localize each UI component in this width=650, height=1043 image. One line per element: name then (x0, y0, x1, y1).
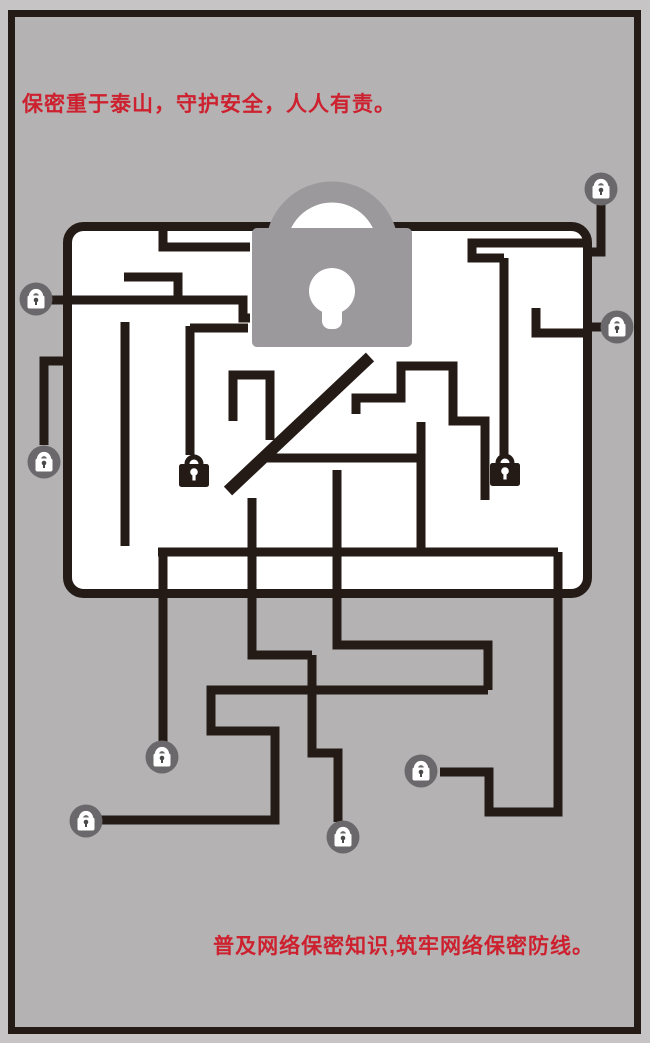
lock-badge-icon (405, 755, 438, 788)
lock-badge-icon (327, 821, 360, 854)
lock-badge-icon (601, 311, 634, 344)
padlock-icon (252, 192, 412, 347)
lock-badge-icon (70, 805, 103, 838)
bottom-slogan: 普及网络保密知识,筑牢网络保密防线。 (213, 930, 594, 960)
security-poster: 保密重于泰山，守护安全，人人有责。 普及网络保密知识,筑牢网络保密防线。 (0, 0, 650, 1043)
lock-badge-icon (20, 283, 53, 316)
lock-badge-icon (585, 173, 618, 206)
lock-badge-icon (28, 446, 61, 479)
lock-badge-icon (146, 741, 179, 774)
top-slogan: 保密重于泰山，守护安全，人人有责。 (22, 88, 396, 118)
maze-illustration (0, 0, 650, 1043)
